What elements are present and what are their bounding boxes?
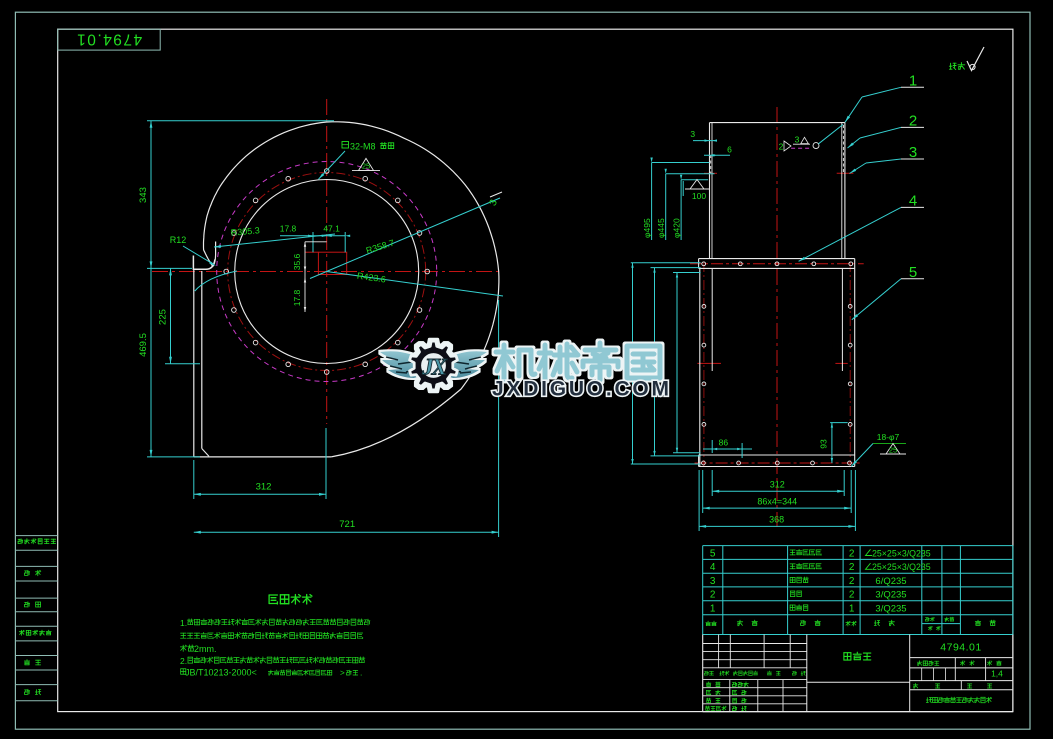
svg-text:312: 312	[256, 482, 272, 493]
svg-text:2.: 2.	[180, 656, 187, 666]
svg-text:R12: R12	[170, 235, 187, 245]
svg-text:φ445: φ445	[656, 218, 666, 238]
svg-text:35.6: 35.6	[292, 253, 302, 270]
svg-text:86: 86	[719, 437, 729, 447]
svg-text:6/Q235: 6/Q235	[875, 576, 906, 587]
svg-text:5: 5	[710, 548, 716, 559]
svg-text:3: 3	[909, 144, 917, 161]
svg-text:2mm.: 2mm.	[194, 644, 217, 654]
svg-text:469.5: 469.5	[138, 333, 149, 357]
svg-text:.: .	[360, 667, 362, 677]
svg-text:225: 225	[158, 309, 169, 325]
svg-text:3/Q235: 3/Q235	[875, 590, 906, 601]
svg-text:JXDIGUO.COM: JXDIGUO.COM	[492, 378, 670, 401]
svg-text:17.8: 17.8	[280, 224, 297, 234]
svg-text:>: >	[340, 668, 345, 677]
svg-text:2: 2	[849, 548, 855, 559]
svg-text:18-φ7: 18-φ7	[877, 432, 900, 442]
svg-text:721: 721	[339, 519, 355, 530]
svg-text:3: 3	[795, 135, 800, 145]
svg-text:312: 312	[770, 480, 785, 490]
svg-text:93: 93	[819, 439, 829, 449]
svg-text:1.: 1.	[180, 618, 187, 628]
svg-text:17.8: 17.8	[292, 289, 302, 306]
svg-text:25: 25	[362, 162, 370, 171]
svg-text:4794.01: 4794.01	[940, 642, 981, 654]
svg-text:φ495: φ495	[642, 218, 652, 238]
svg-text:25×25×3/Q235: 25×25×3/Q235	[872, 562, 931, 572]
svg-text:2: 2	[710, 590, 716, 601]
svg-text:343: 343	[138, 187, 149, 203]
svg-text:100: 100	[692, 191, 706, 201]
svg-text:2: 2	[849, 562, 855, 573]
svg-text:1: 1	[710, 604, 716, 615]
svg-text:3: 3	[690, 129, 695, 139]
svg-text:32-M8: 32-M8	[350, 142, 376, 152]
svg-text:JB/T10213-2000<: JB/T10213-2000<	[185, 667, 257, 677]
svg-text:3: 3	[710, 576, 716, 587]
svg-text:φ420: φ420	[672, 218, 682, 238]
svg-text:2: 2	[849, 590, 855, 601]
svg-text:6: 6	[727, 145, 732, 155]
svg-text:47.1: 47.1	[323, 224, 340, 234]
svg-text:1,4: 1,4	[991, 669, 1003, 679]
svg-text:2: 2	[779, 142, 784, 152]
svg-text:86x4=344: 86x4=344	[757, 496, 797, 506]
svg-text:2: 2	[849, 576, 855, 587]
svg-text:25×25×3/Q235: 25×25×3/Q235	[872, 548, 931, 558]
svg-text:JX: JX	[421, 355, 448, 380]
svg-text:25: 25	[889, 446, 897, 455]
svg-text:1: 1	[849, 604, 855, 615]
svg-text:4: 4	[710, 562, 716, 573]
svg-text:4794.01: 4794.01	[76, 31, 143, 48]
svg-text:3/Q235: 3/Q235	[875, 604, 906, 615]
svg-text:368: 368	[769, 515, 784, 525]
